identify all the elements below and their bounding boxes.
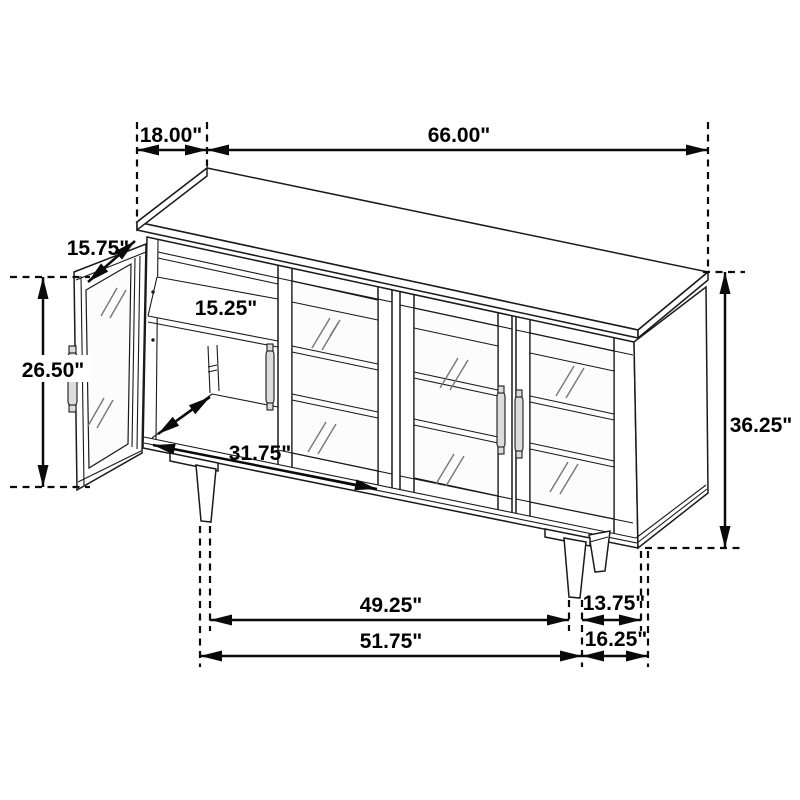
dim-legs-outer-span: 51.75": [200, 630, 582, 656]
door-3-glass-pane: [414, 308, 498, 496]
dim-label-legs-outer-span: 51.75": [360, 630, 423, 653]
dim-leg-front-depth: 13.75": [582, 592, 645, 620]
dim-label-door-width: 15.75": [67, 237, 130, 260]
dim-top-width: 66.00": [207, 124, 708, 150]
door-1-handle-plate: [69, 405, 76, 412]
door-2-handle[interactable]: [266, 350, 274, 404]
door-3-handle-plate: [498, 447, 504, 454]
dim-label-left-height: 26.50": [22, 359, 85, 382]
dim-top-depth: 18.00": [137, 124, 207, 150]
dim-base-depth: 16.25": [582, 628, 648, 656]
door-4-handle[interactable]: [515, 396, 523, 452]
door-3-handle-plate: [498, 386, 504, 393]
front-left-leg: [196, 465, 216, 522]
door-1-handle-plate: [69, 346, 76, 353]
dim-label-shelf-depth: 15.25": [195, 297, 258, 320]
door-4-handle-plate: [516, 451, 522, 458]
door-2-glass-pane: [292, 281, 378, 471]
dim-label-base-depth: 16.25": [585, 628, 648, 651]
sideboard-dimension-diagram: 18.00" 66.00" 15.75" 26.50" 15.25" 31.75…: [0, 0, 800, 800]
dim-label-top-width: 66.00": [428, 124, 491, 147]
door-3-handle[interactable]: [497, 392, 505, 448]
dimension-diagram-page: 18.00" 66.00" 15.75" 26.50" 15.25" 31.75…: [0, 0, 800, 800]
shelf-pin-hole: [151, 290, 154, 293]
dim-label-leg-front-depth: 13.75": [583, 592, 646, 615]
shelf-pin-hole: [151, 338, 154, 341]
door-4-glass-pane: [530, 333, 614, 519]
dim-legs-inner-span: 49.25": [210, 594, 569, 620]
door-1-glass-pane: [86, 264, 131, 468]
front-right-leg: [564, 538, 586, 598]
dim-overall-height: 36.25": [725, 272, 792, 548]
dim-label-interior-width: 31.75": [229, 442, 292, 465]
dim-label-legs-inner-span: 49.25": [360, 594, 423, 617]
door-2-handle-plate: [267, 403, 273, 410]
dim-label-overall-height: 36.25": [730, 414, 793, 437]
dim-label-top-depth: 18.00": [140, 124, 203, 147]
door-4-handle-plate: [516, 390, 522, 397]
door-2-handle-plate: [267, 344, 273, 351]
